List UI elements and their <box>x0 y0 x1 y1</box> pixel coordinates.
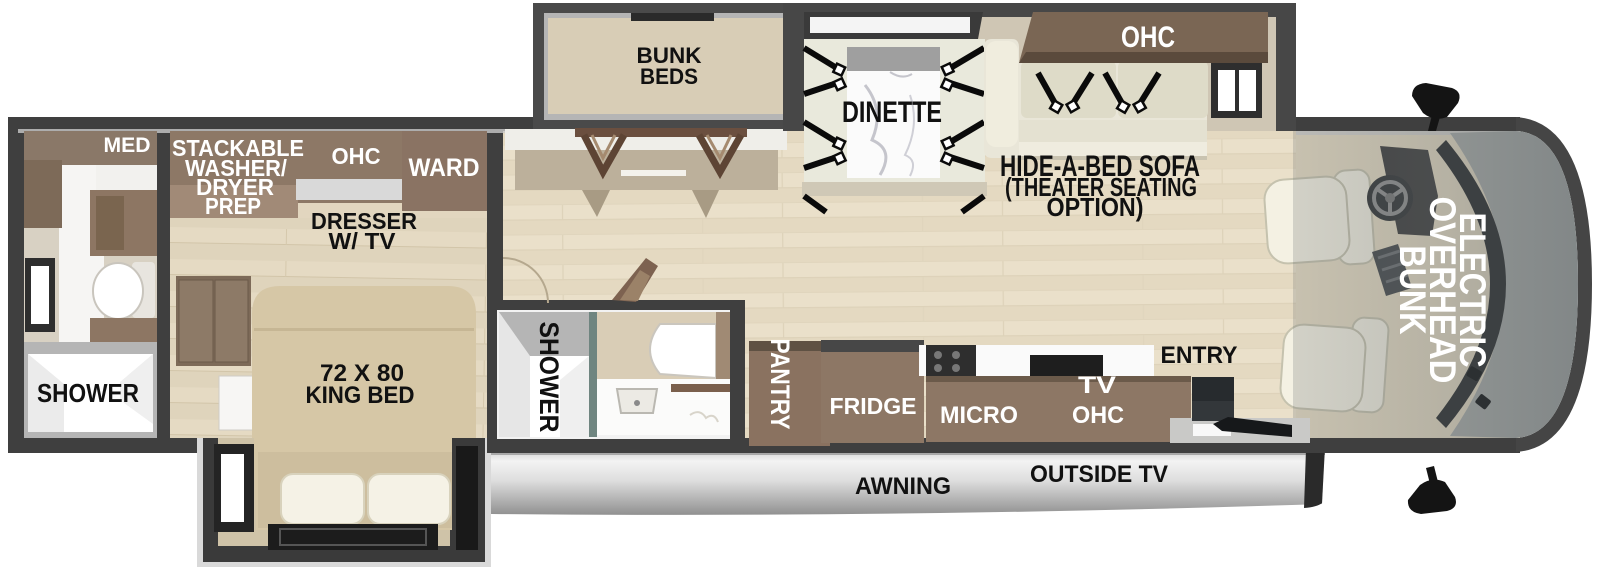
svg-text:PREP: PREP <box>205 193 261 219</box>
svg-text:OPTION): OPTION) <box>1047 192 1144 222</box>
svg-text:FRIDGE: FRIDGE <box>830 393 917 419</box>
svg-text:TV: TV <box>1078 372 1116 399</box>
svg-text:ENTRY: ENTRY <box>1161 342 1238 369</box>
svg-text:PANTRY: PANTRY <box>765 339 795 430</box>
svg-text:OUTSIDE TV: OUTSIDE TV <box>1030 461 1168 488</box>
svg-text:OHC: OHC <box>332 143 381 169</box>
svg-text:OHC: OHC <box>1121 21 1175 54</box>
svg-text:SHOWER: SHOWER <box>37 378 139 408</box>
svg-text:BUNK: BUNK <box>1392 246 1433 335</box>
svg-text:BEDS: BEDS <box>640 64 698 89</box>
svg-text:SHOWER: SHOWER <box>534 322 564 433</box>
svg-text:KING BED: KING BED <box>306 382 415 409</box>
svg-text:MICRO: MICRO <box>940 402 1018 429</box>
svg-text:MED: MED <box>104 134 151 157</box>
svg-text:WARD: WARD <box>409 154 480 182</box>
svg-text:W/ TV: W/ TV <box>329 228 397 254</box>
svg-text:DINETTE: DINETTE <box>842 96 942 129</box>
svg-text:OHC: OHC <box>1072 402 1124 429</box>
svg-text:AWNING: AWNING <box>855 473 951 500</box>
